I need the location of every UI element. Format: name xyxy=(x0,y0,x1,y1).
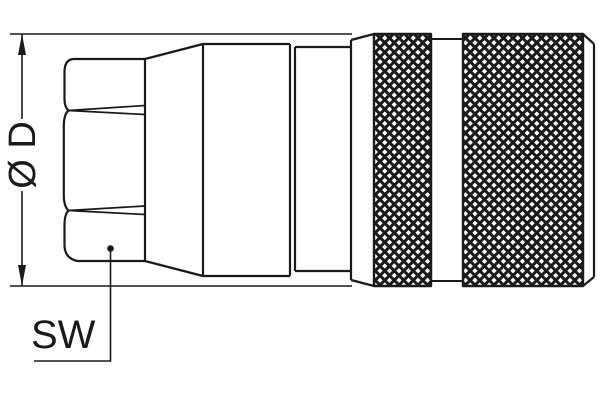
knurled-band-2 xyxy=(463,34,583,286)
knurled-band-1 xyxy=(374,34,431,286)
hex-facet-lines xyxy=(69,106,146,215)
sleeve-front-face xyxy=(351,34,374,286)
cone-transition xyxy=(145,44,203,276)
end-cap xyxy=(583,34,594,286)
hex-left-edge xyxy=(64,59,77,261)
coupling-drawing: Ø D xyxy=(0,0,600,400)
body-large-outline xyxy=(203,44,290,276)
sleeve-face-lines xyxy=(351,34,374,286)
wrench-flat-callout: SW xyxy=(31,245,114,361)
body-section-large xyxy=(203,44,290,276)
diameter-dimension: Ø D xyxy=(2,34,352,286)
technical-drawing-canvas: Ø D xyxy=(0,0,600,400)
arrow-up-icon xyxy=(18,34,26,55)
body-section-small xyxy=(295,47,351,271)
arrow-down-icon xyxy=(18,265,26,286)
sleeve-groove xyxy=(431,39,463,281)
hex-outline xyxy=(73,59,145,261)
hex-nut xyxy=(64,59,145,261)
diameter-label: Ø D xyxy=(2,121,44,189)
cone-lines xyxy=(145,44,203,276)
body-small-outline xyxy=(295,47,351,271)
wrench-flat-label: SW xyxy=(31,313,96,357)
coupling-body xyxy=(64,34,594,286)
